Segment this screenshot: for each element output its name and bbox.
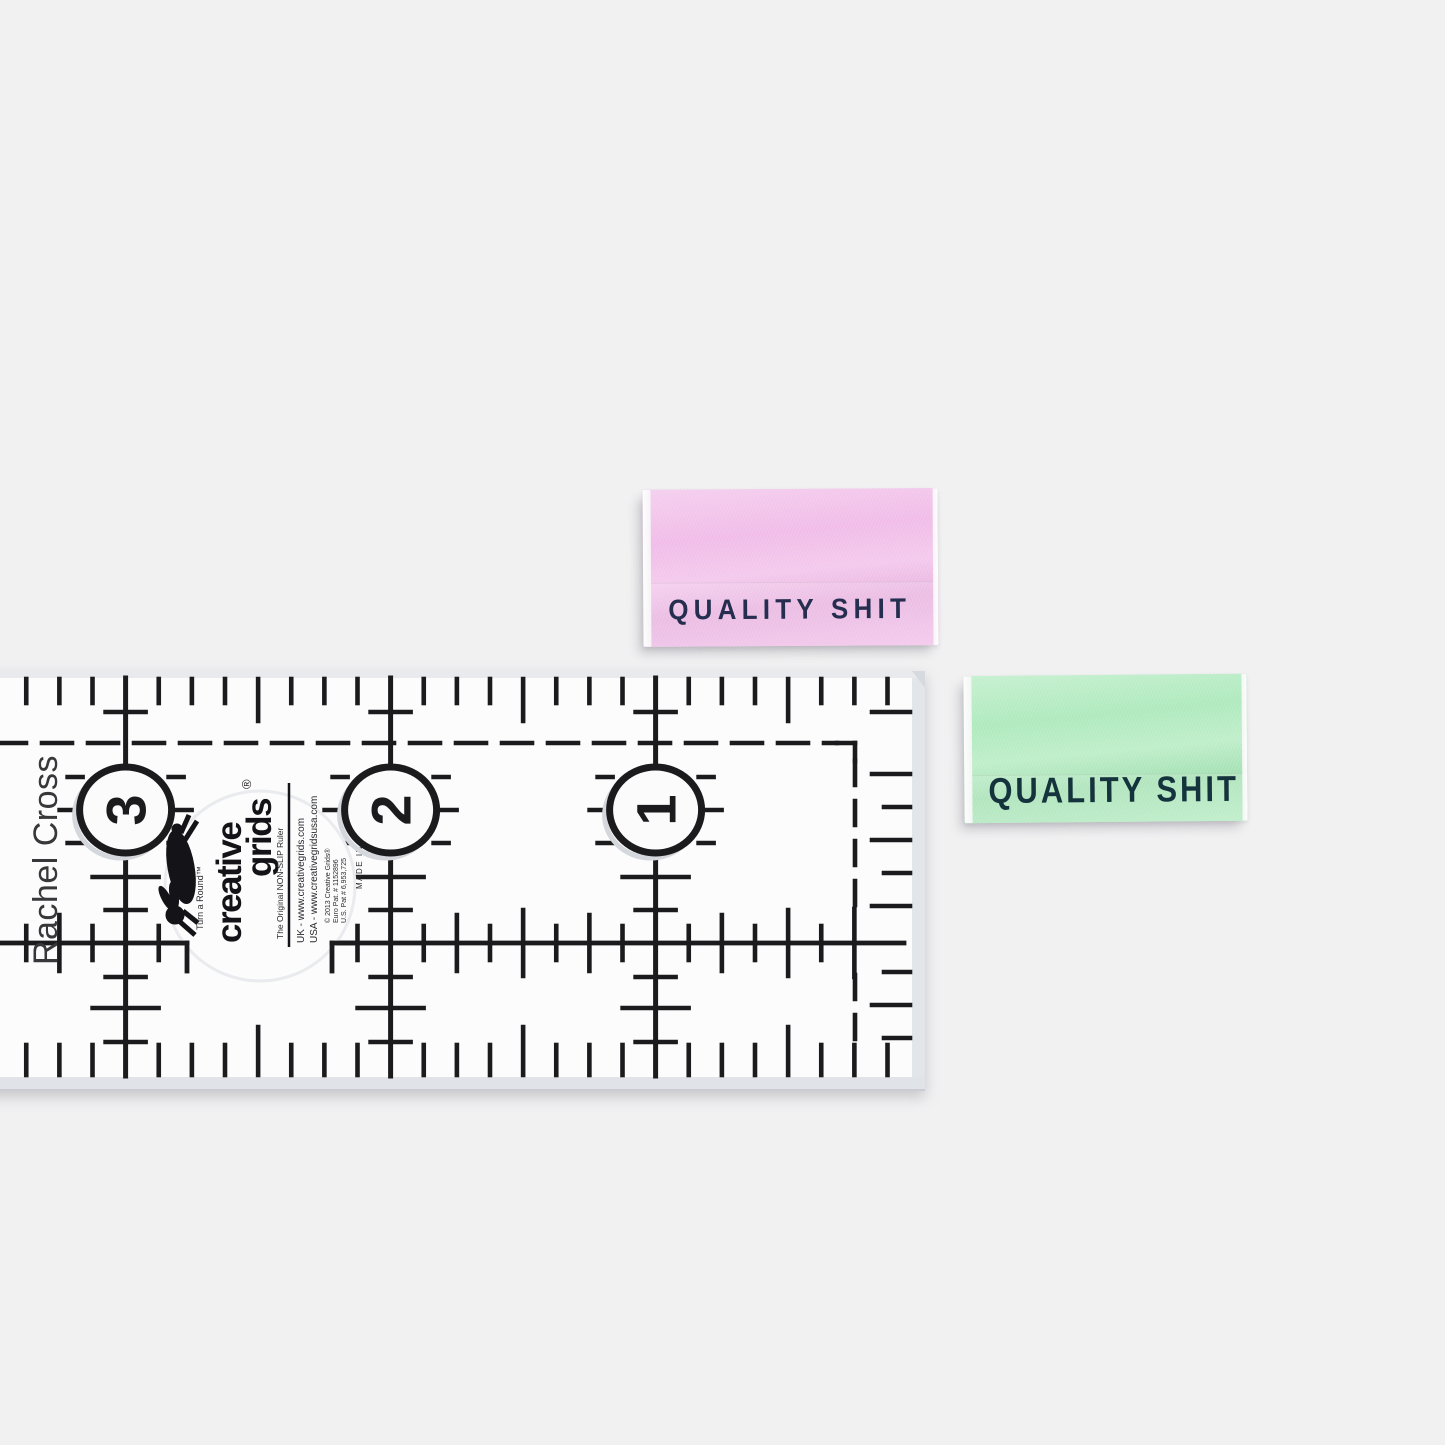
- brand-copyright: © 2013 Creative Grids®: [324, 848, 332, 923]
- inch-marker-3: 3: [75, 767, 172, 858]
- inch-marker-1: 1: [605, 767, 702, 858]
- brand-website-usa: USA - www.creativegridsusa.com: [309, 796, 320, 943]
- product-photo-scene: Turn a Round™ creative grids ® The Origi…: [0, 0, 1445, 1445]
- brand-name-line2: grids: [240, 798, 279, 877]
- quilting-ruler: Turn a Round™ creative grids ® The Origi…: [0, 664, 970, 1112]
- pink-label-left-fringe: [643, 490, 652, 647]
- green-label-right-fringe: [1241, 674, 1247, 821]
- pink-label-fabric: QUALITY SHIT: [643, 488, 939, 647]
- pink-label-right-fringe: [933, 488, 939, 645]
- pink-label-text: QUALITY SHIT: [668, 593, 911, 627]
- inch-marker-2: 2: [340, 767, 437, 858]
- green-label-text: QUALITY SHIT: [988, 768, 1239, 812]
- brand-patent-1: Euro Pat. # 1152896: [333, 859, 340, 923]
- ruler-maker-name: Rachel Cross: [27, 755, 65, 965]
- brand-website-uk: UK - www.creativegrids.com: [296, 818, 307, 943]
- brand-tagline-top: Turn a Round™: [195, 866, 205, 930]
- green-label-fabric: QUALITY SHIT: [963, 674, 1247, 823]
- registered-mark-icon: ®: [239, 779, 254, 789]
- inch-number-3: 3: [95, 794, 158, 825]
- green-label-left-fringe: [963, 676, 972, 823]
- inch-number-2: 2: [360, 794, 423, 825]
- woven-label-green: QUALITY SHIT: [963, 674, 1247, 823]
- brand-patent-2: U.S. Pat # 6,953,725: [341, 858, 348, 923]
- inch-number-1: 1: [625, 794, 688, 825]
- ruler-right-edge: [912, 678, 925, 1077]
- ruler-bottom-edge: [0, 1077, 925, 1090]
- woven-label-pink: QUALITY SHIT: [643, 488, 939, 647]
- brand-tagline-bottom: The Original NON-SLIP Ruler: [275, 828, 285, 939]
